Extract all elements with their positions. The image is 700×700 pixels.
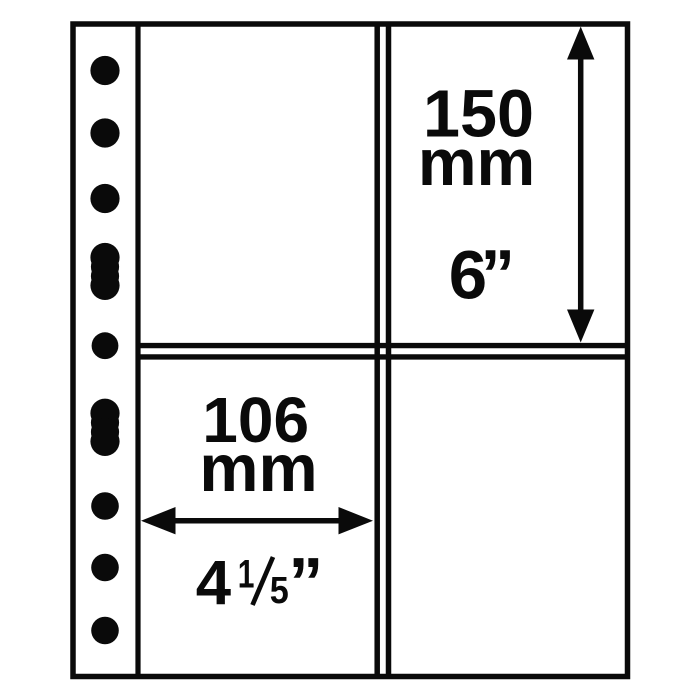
svg-text:”: ” <box>481 236 516 313</box>
svg-text:mm: mm <box>199 432 317 506</box>
svg-text:1: 1 <box>238 552 255 596</box>
svg-text:5: 5 <box>270 568 289 611</box>
svg-text:”: ” <box>288 543 323 621</box>
svg-text:4: 4 <box>196 548 231 618</box>
svg-text:mm: mm <box>418 125 535 199</box>
